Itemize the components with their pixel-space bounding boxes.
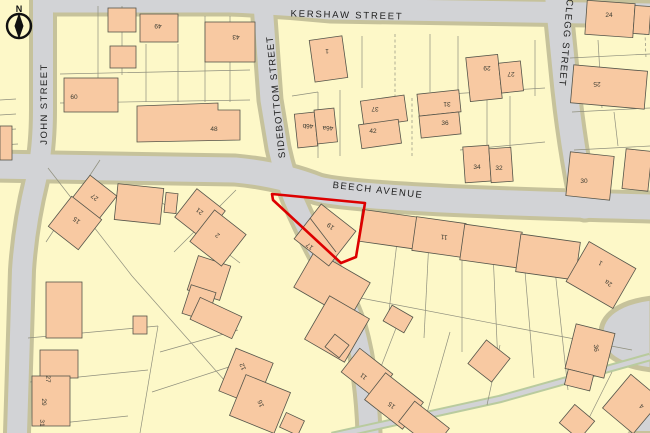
house-number: 36 <box>592 344 600 352</box>
house-number: 29 <box>40 398 47 406</box>
buildings-part <box>133 316 147 334</box>
site-map: KERSHAW STREETBEECH AVENUEJOHN STREETSID… <box>0 0 650 433</box>
map-canvas: KERSHAW STREETBEECH AVENUEJOHN STREETSID… <box>0 0 650 433</box>
house-number: 1 <box>325 47 329 54</box>
house-number: 37 <box>371 105 379 112</box>
house-number: 31 <box>443 100 451 107</box>
house-number: 11 <box>440 233 448 241</box>
buildings-part <box>164 192 178 213</box>
house-number: 25 <box>593 80 601 87</box>
house-number: 27 <box>507 70 515 77</box>
buildings-part <box>359 119 402 148</box>
buildings-part <box>466 54 502 101</box>
street-label: JOHN STREET <box>39 63 50 144</box>
house-number: 46b <box>302 122 313 129</box>
buildings-part <box>633 5 650 34</box>
buildings-part <box>566 152 614 200</box>
buildings-part <box>205 22 255 62</box>
buildings-part <box>294 112 317 148</box>
buildings-part <box>108 8 136 32</box>
buildings-part <box>419 112 461 138</box>
buildings-part <box>110 46 136 68</box>
house-number: 36 <box>441 120 449 127</box>
buildings-part <box>46 282 82 338</box>
buildings-part <box>412 217 466 258</box>
house-number: 42 <box>369 128 377 135</box>
buildings-part <box>32 376 70 426</box>
house-number: 43 <box>232 33 240 40</box>
house-number: 27 <box>44 375 51 383</box>
house-number: 29 <box>483 64 491 71</box>
buildings-part <box>0 126 12 160</box>
buildings-part <box>460 224 522 268</box>
house-number: 34 <box>473 164 481 171</box>
house-number: 49 <box>154 22 162 29</box>
buildings-part <box>309 36 348 82</box>
buildings-part <box>570 65 647 109</box>
buildings-part <box>40 350 78 378</box>
house-number: 46a <box>322 124 333 131</box>
buildings-part <box>585 0 635 37</box>
buildings-part <box>622 149 650 191</box>
compass-n-label: N <box>16 4 23 14</box>
house-number: 48 <box>210 126 218 133</box>
buildings-part <box>114 184 164 225</box>
house-number: 24 <box>605 12 613 19</box>
house-number: 31 <box>38 419 45 427</box>
house-number: 32 <box>495 165 503 172</box>
house-number: 60 <box>70 94 78 101</box>
house-number: 30 <box>580 178 588 185</box>
